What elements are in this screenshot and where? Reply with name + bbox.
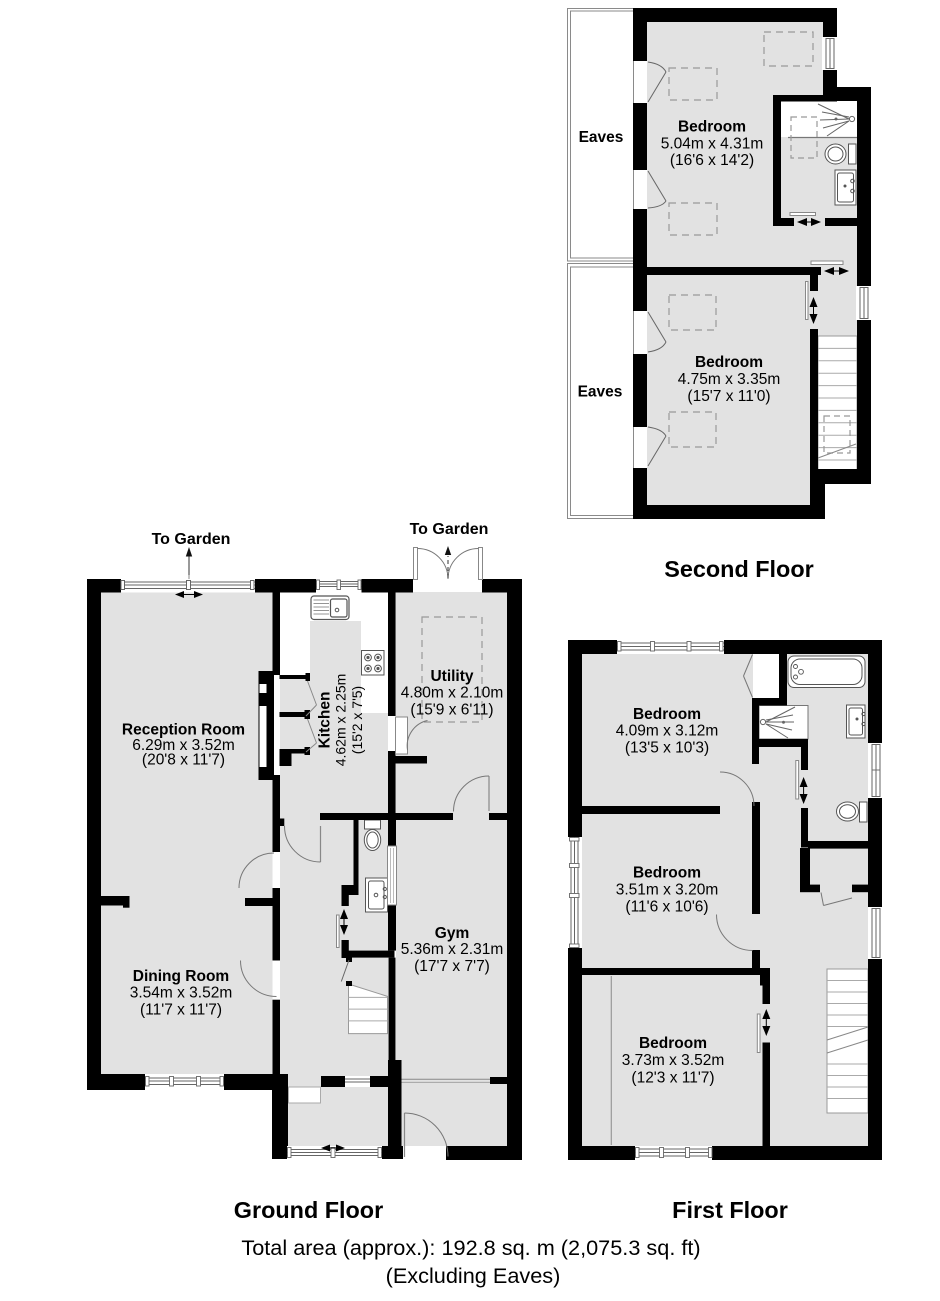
svg-text:5.36m x 2.31m: 5.36m x 2.31m [401,941,504,958]
svg-text:4.09m x 3.12m: 4.09m x 3.12m [616,723,719,740]
svg-text:3.73m x 3.52m: 3.73m x 3.52m [622,1052,725,1069]
svg-text:(11'7 x 11'7): (11'7 x 11'7) [140,1002,222,1019]
svg-text:Dining Room: Dining Room [133,968,229,985]
svg-text:Bedroom: Bedroom [639,1035,707,1052]
svg-text:Bedroom: Bedroom [633,865,701,882]
svg-text:Ground Floor: Ground Floor [234,1197,383,1223]
svg-text:(15'2 x 7'5): (15'2 x 7'5) [349,686,365,754]
svg-text:(15'7 x 11'0): (15'7 x 11'0) [687,388,770,405]
svg-text:(15'9 x 6'11): (15'9 x 6'11) [410,702,493,719]
svg-text:Bedroom: Bedroom [695,354,763,371]
svg-text:Bedroom: Bedroom [633,706,701,723]
svg-text:Total area (approx.): 192.8 sq: Total area (approx.): 192.8 sq. m (2,075… [241,1235,700,1260]
svg-text:To Garden: To Garden [410,521,489,538]
svg-text:Reception Room: Reception Room [122,722,245,739]
svg-text:4.80m x 2.10m: 4.80m x 2.10m [401,685,504,702]
svg-text:3.54m x 3.52m: 3.54m x 3.52m [130,985,233,1002]
svg-text:Utility: Utility [430,668,473,685]
svg-text:(11'6 x 10'6): (11'6 x 10'6) [625,899,708,916]
svg-text:To Garden: To Garden [152,531,231,548]
svg-text:4.75m x 3.35m: 4.75m x 3.35m [678,371,781,388]
svg-text:(13'5 x 10'3): (13'5 x 10'3) [625,740,709,757]
svg-text:Kitchen: Kitchen [317,692,334,749]
svg-text:4.62m x 2.25m: 4.62m x 2.25m [333,674,349,767]
svg-text:(17'7 x 7'7): (17'7 x 7'7) [414,958,490,975]
svg-text:First Floor: First Floor [672,1197,788,1223]
svg-text:Eaves: Eaves [579,129,624,146]
svg-text:3.51m x 3.20m: 3.51m x 3.20m [616,882,719,899]
svg-text:5.04m x 4.31m: 5.04m x 4.31m [661,135,764,152]
svg-text:(Excluding Eaves): (Excluding Eaves) [386,1263,561,1288]
svg-text:Eaves: Eaves [578,384,623,401]
svg-text:Second Floor: Second Floor [664,556,813,582]
svg-text:Gym: Gym [435,925,469,942]
svg-text:(20'8 x 11'7): (20'8 x 11'7) [142,752,225,769]
svg-text:(12'3 x 11'7): (12'3 x 11'7) [631,1070,714,1087]
svg-text:Bedroom: Bedroom [678,119,746,136]
svg-text:(16'6 x 14'2): (16'6 x 14'2) [670,152,754,169]
